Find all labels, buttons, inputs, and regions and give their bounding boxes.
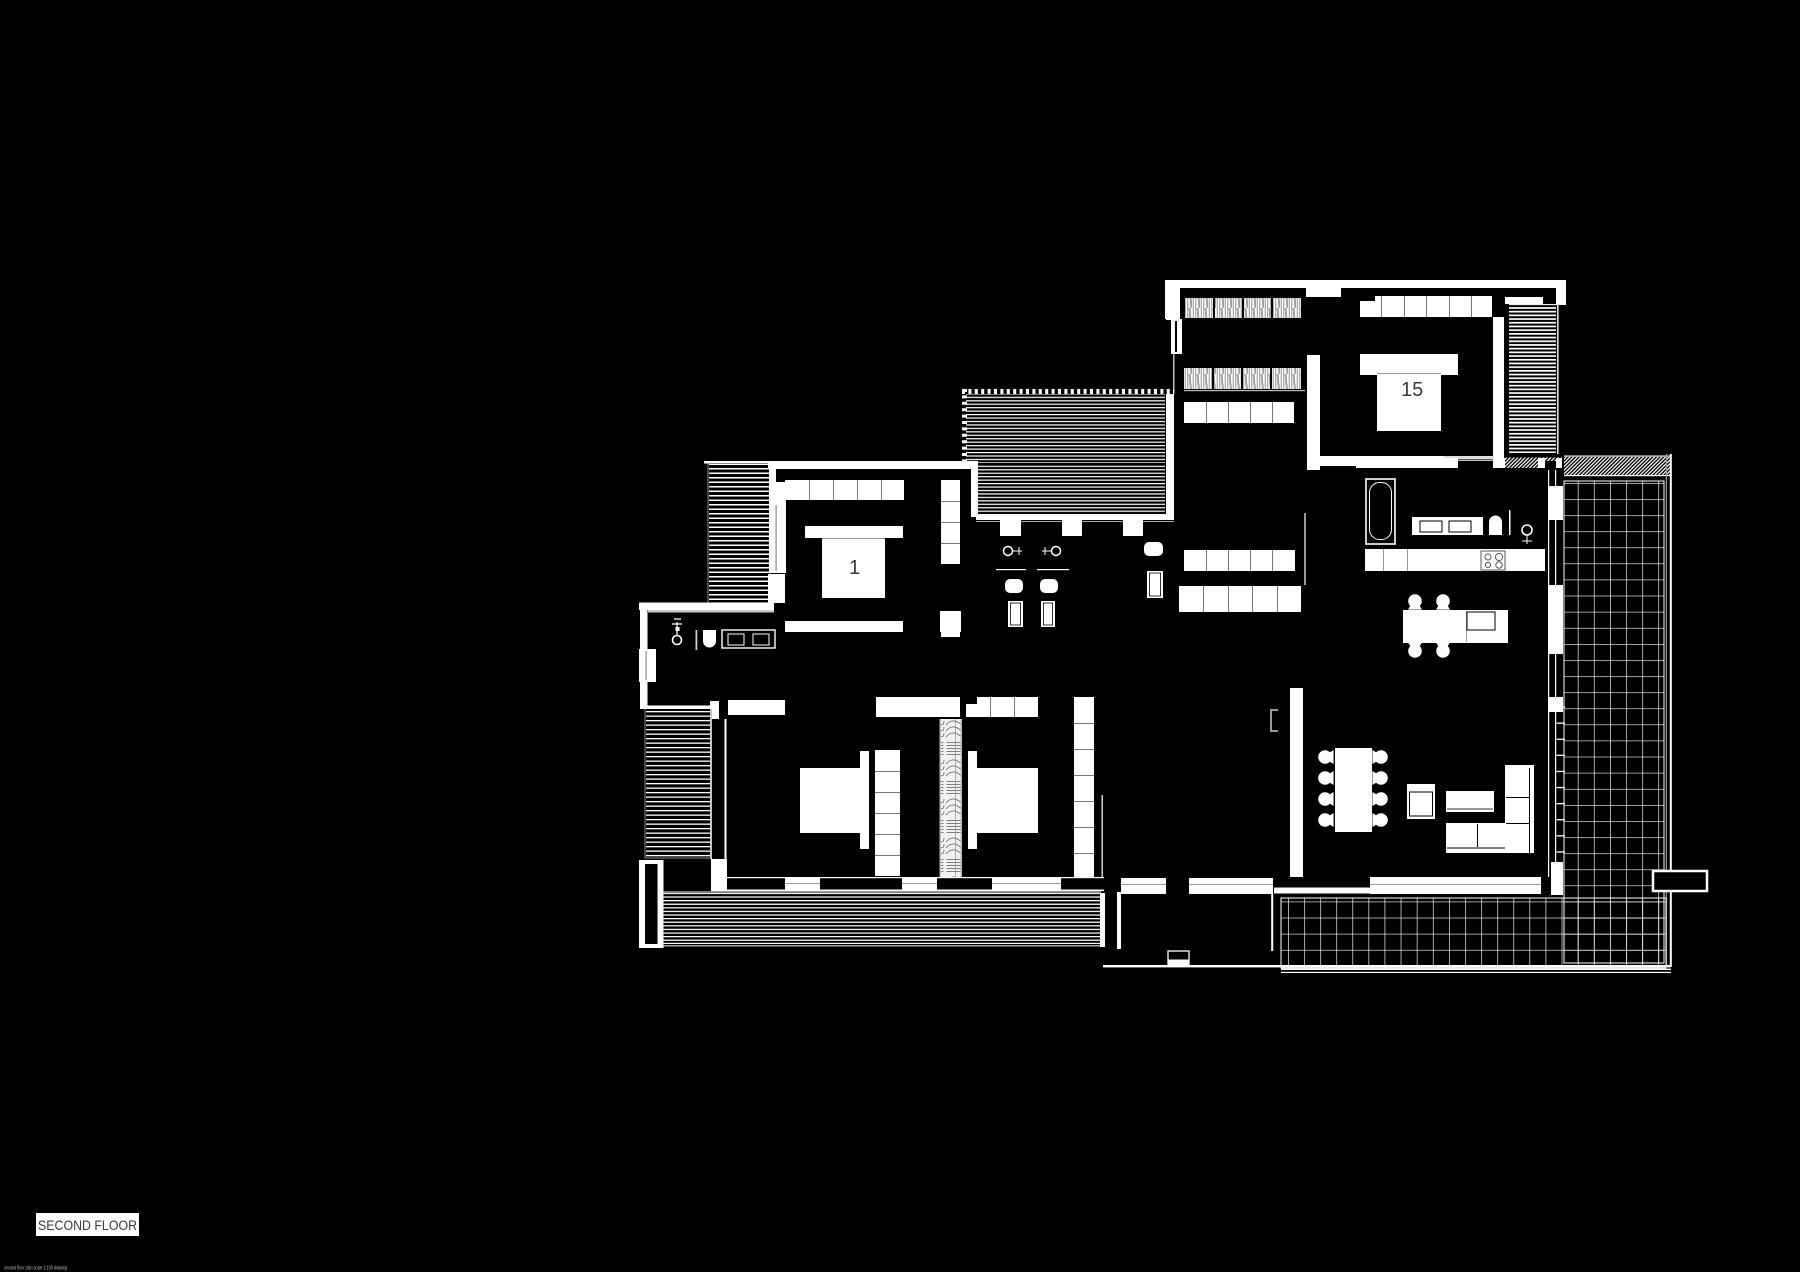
- svg-text:1: 1: [849, 557, 860, 579]
- svg-text:SECOND FLOOR: SECOND FLOOR: [38, 1217, 137, 1233]
- svg-text:second floor plan scale 1:100: second floor plan scale 1:100 drawing: [4, 1266, 67, 1272]
- svg-text:15: 15: [1401, 379, 1423, 401]
